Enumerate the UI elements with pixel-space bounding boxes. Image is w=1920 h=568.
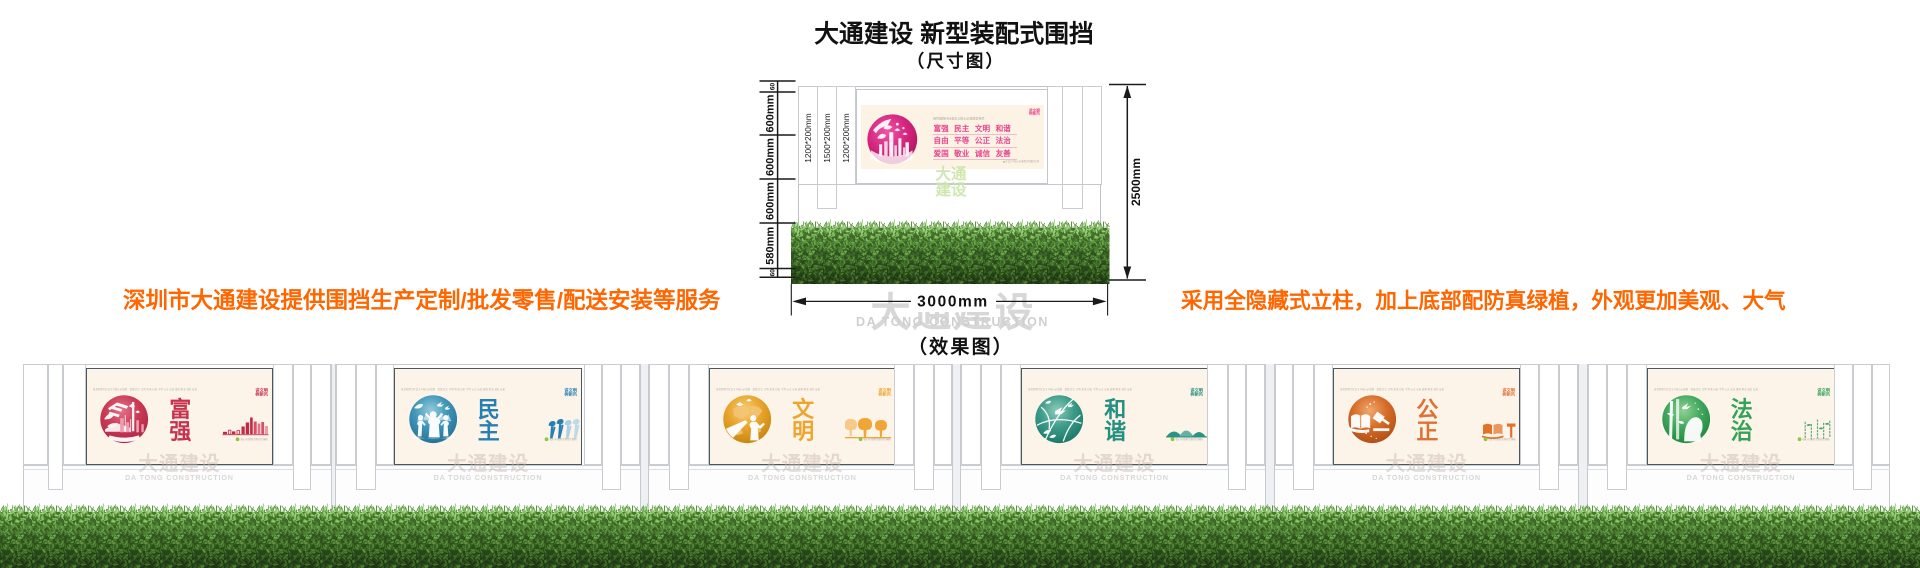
svg-text:3000mm: 3000mm: [917, 294, 989, 311]
svg-text:60: 60: [770, 269, 777, 277]
svg-text:2500mm: 2500mm: [1129, 158, 1143, 206]
svg-text:60: 60: [770, 83, 777, 91]
svg-text:600mm: 600mm: [765, 138, 777, 176]
svg-text:600mm: 600mm: [765, 94, 777, 132]
svg-text:600mm: 600mm: [765, 182, 777, 220]
svg-text:580mm: 580mm: [765, 227, 777, 265]
